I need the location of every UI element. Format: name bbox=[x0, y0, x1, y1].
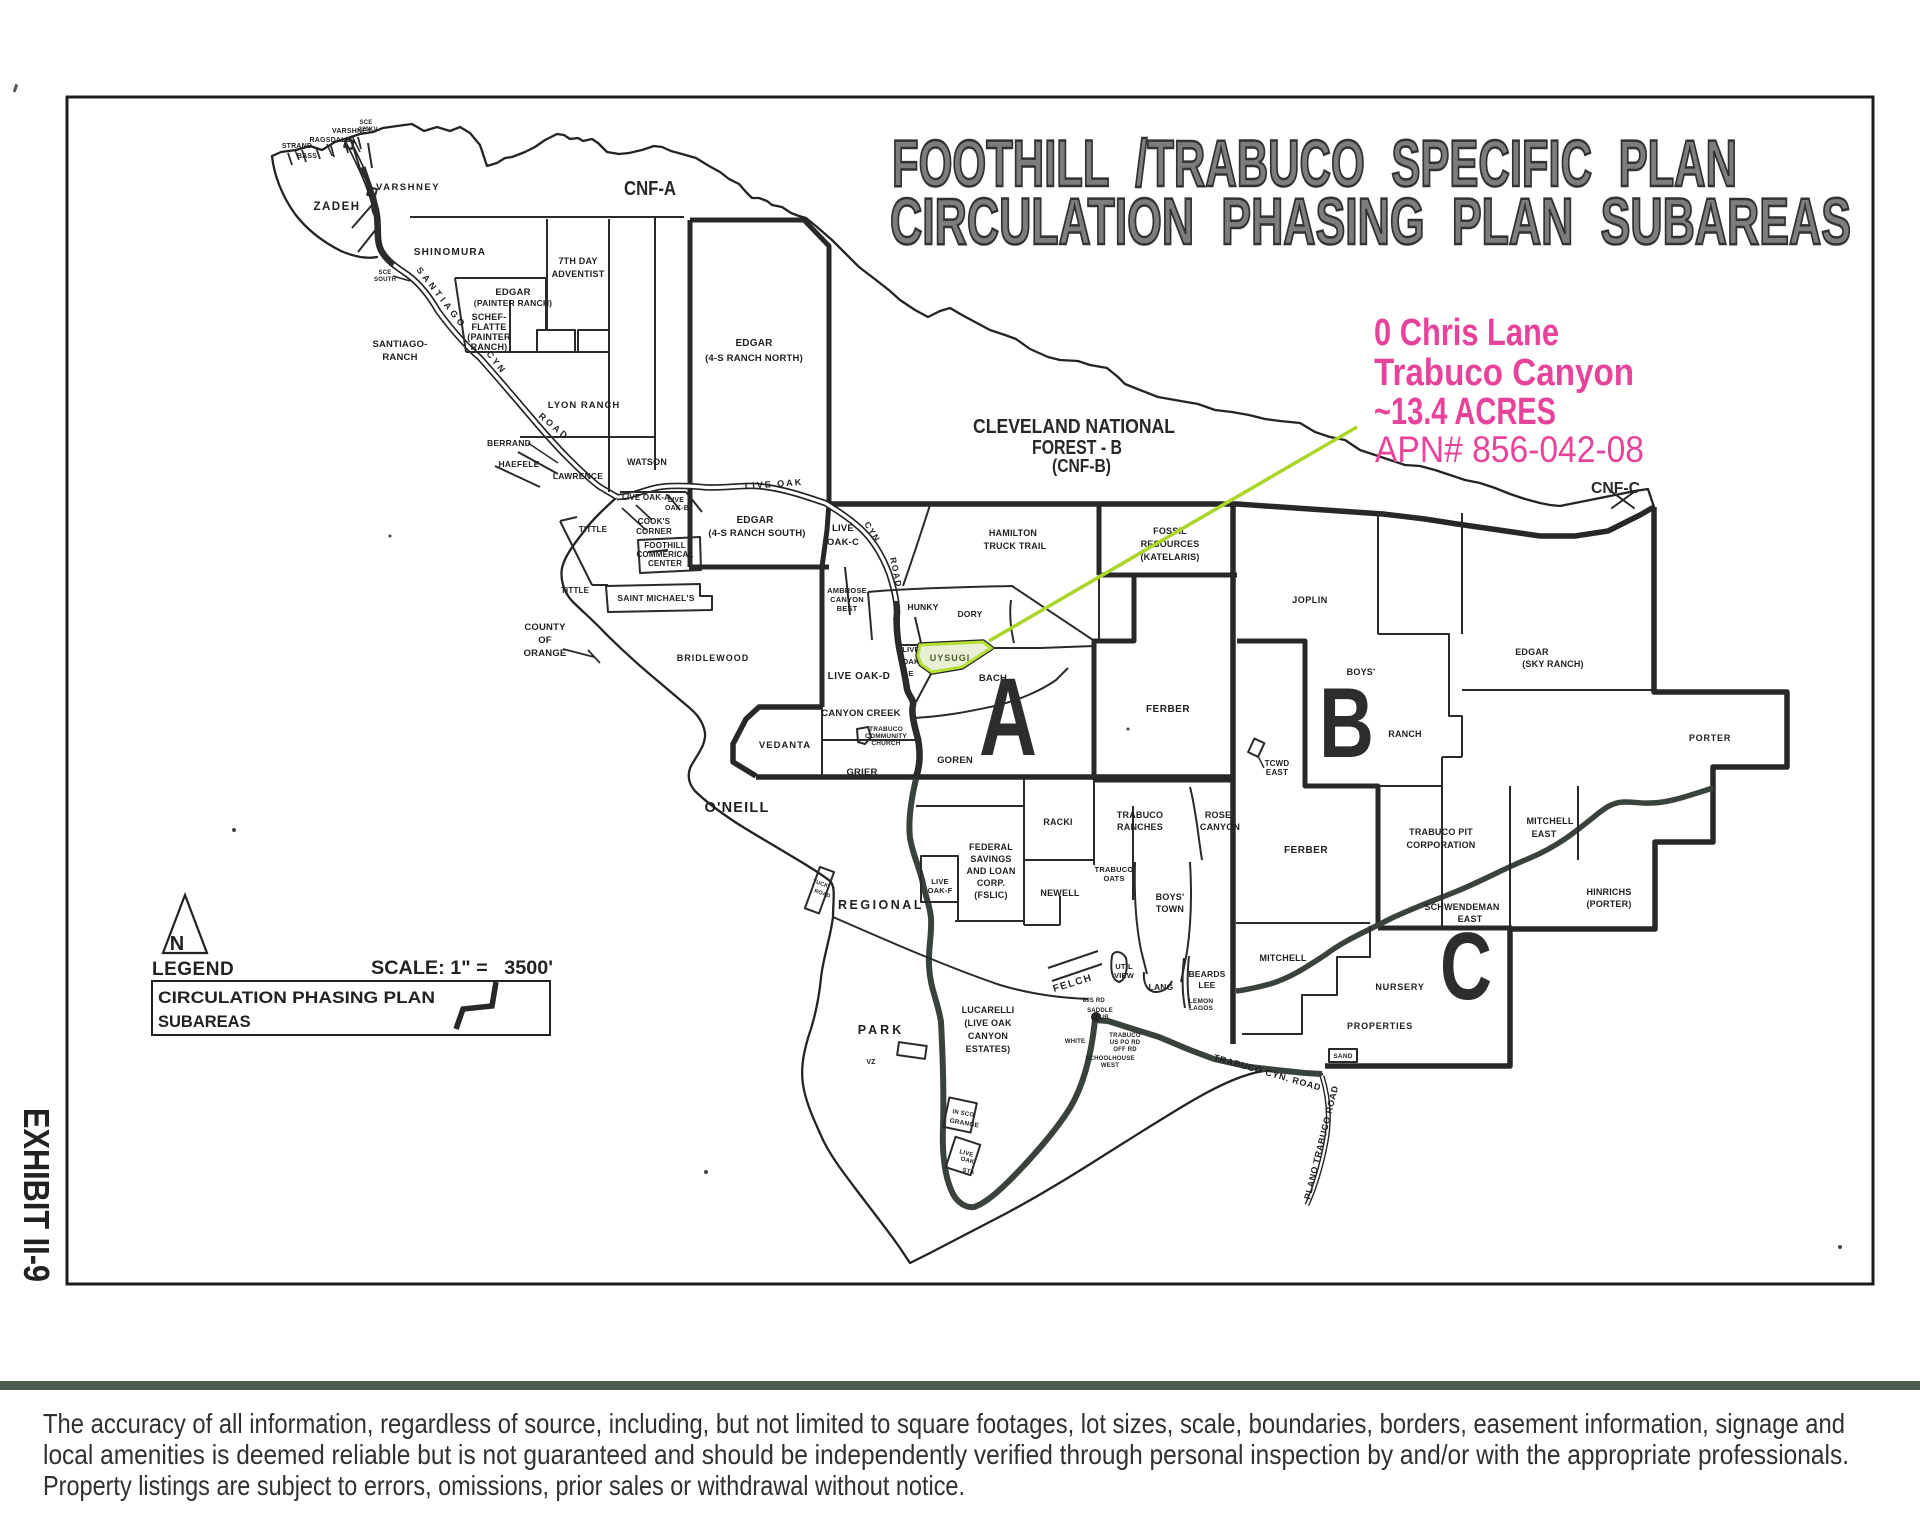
svg-text:~13.4 ACRES: ~13.4 ACRES bbox=[1374, 391, 1556, 433]
svg-text:PARK: PARK bbox=[858, 1023, 905, 1037]
svg-text:VIEW: VIEW bbox=[1114, 971, 1135, 980]
svg-text:CORPORATION: CORPORATION bbox=[1406, 840, 1475, 850]
svg-text:TRABUCO: TRABUCO bbox=[1095, 865, 1134, 874]
svg-text:VARSHNEY: VARSHNEY bbox=[376, 182, 440, 193]
svg-text:RANCH: RANCH bbox=[382, 352, 417, 363]
svg-text:CANYON: CANYON bbox=[830, 595, 864, 604]
svg-text:AND LOAN: AND LOAN bbox=[966, 866, 1015, 876]
svg-text:EDGAR: EDGAR bbox=[1515, 647, 1549, 657]
svg-text:local amenities is deemed reli: local amenities is deemed reliable but i… bbox=[43, 1439, 1849, 1470]
svg-text:SADDLE: SADDLE bbox=[1087, 1008, 1113, 1014]
svg-text:RACKI: RACKI bbox=[1043, 817, 1073, 827]
svg-text:LANG: LANG bbox=[1149, 982, 1174, 992]
svg-text:SAND: SAND bbox=[1333, 1053, 1352, 1060]
svg-text:PORTER: PORTER bbox=[1689, 733, 1731, 743]
svg-text:GRIER: GRIER bbox=[846, 767, 877, 778]
svg-text:EAST: EAST bbox=[1266, 768, 1288, 777]
svg-text:SAINT MICHAEL'S: SAINT MICHAEL'S bbox=[617, 593, 694, 603]
svg-text:PROPERTIES: PROPERTIES bbox=[1347, 1021, 1413, 1031]
svg-text:SAVINGS: SAVINGS bbox=[970, 854, 1011, 864]
svg-text:COUNTY: COUNTY bbox=[524, 622, 566, 633]
svg-text:LIVE: LIVE bbox=[832, 523, 854, 534]
svg-text:FOOTHILL: FOOTHILL bbox=[644, 541, 686, 550]
svg-text:TRABUCO PIT: TRABUCO PIT bbox=[1409, 827, 1473, 837]
svg-text:VZ: VZ bbox=[866, 1059, 876, 1066]
svg-text:COMMUNITY: COMMUNITY bbox=[865, 733, 907, 740]
svg-text:CENTER: CENTER bbox=[648, 559, 682, 568]
svg-text:SUBAREAS: SUBAREAS bbox=[158, 1013, 251, 1031]
svg-text:LAWRENCE: LAWRENCE bbox=[553, 471, 603, 481]
svg-text:EDGAR: EDGAR bbox=[736, 515, 774, 526]
svg-text:EDGAR: EDGAR bbox=[495, 287, 530, 298]
svg-text:SCE: SCE bbox=[379, 270, 392, 276]
svg-text:LIVE OAK-A: LIVE OAK-A bbox=[622, 493, 670, 502]
svg-text:SANTIAGO-: SANTIAGO- bbox=[372, 339, 427, 350]
svg-text:N: N bbox=[170, 933, 184, 955]
svg-text:BRIDLEWOOD: BRIDLEWOOD bbox=[677, 653, 750, 663]
svg-text:REGIONAL: REGIONAL bbox=[838, 898, 924, 912]
svg-text:TITTLE: TITTLE bbox=[561, 586, 590, 595]
svg-text:O'NEILL: O'NEILL bbox=[704, 800, 769, 816]
svg-text:BOYS': BOYS' bbox=[1156, 892, 1185, 902]
svg-text:CLUB: CLUB bbox=[1091, 1015, 1109, 1021]
svg-text:(SKY RANCH): (SKY RANCH) bbox=[1522, 659, 1584, 669]
svg-text:(4-S RANCH SOUTH): (4-S RANCH SOUTH) bbox=[708, 528, 805, 539]
svg-text:LIVE: LIVE bbox=[668, 497, 684, 504]
svg-text:CANYON: CANYON bbox=[1200, 822, 1240, 832]
svg-text:CNF-A: CNF-A bbox=[624, 178, 676, 200]
svg-text:US PO RD: US PO RD bbox=[1110, 1040, 1141, 1046]
svg-text:SCHEF-: SCHEF- bbox=[472, 312, 507, 322]
svg-text:0 Chris Lane: 0 Chris Lane bbox=[1374, 312, 1559, 354]
svg-text:OAK-C: OAK-C bbox=[827, 537, 859, 548]
svg-text:COMMERICAL: COMMERICAL bbox=[636, 550, 693, 559]
svg-text:'80S RD: '80S RD bbox=[1081, 998, 1105, 1004]
svg-text:OAK-F: OAK-F bbox=[928, 886, 953, 895]
svg-text:CNF-C: CNF-C bbox=[1591, 480, 1640, 497]
svg-text:OFF RD: OFF RD bbox=[1113, 1047, 1137, 1053]
svg-text:HUNKY: HUNKY bbox=[907, 602, 938, 612]
svg-text:LEMON: LEMON bbox=[1189, 998, 1214, 1005]
svg-text:B: B bbox=[1319, 667, 1374, 778]
svg-text:UYSUGI: UYSUGI bbox=[930, 653, 971, 663]
svg-text:(FSLIC): (FSLIC) bbox=[974, 890, 1007, 900]
svg-text:BEARDS: BEARDS bbox=[1188, 969, 1225, 979]
svg-text:EXHIBIT II-9: EXHIBIT II-9 bbox=[16, 1108, 57, 1282]
svg-text:(LIVE OAK: (LIVE OAK bbox=[964, 1018, 1012, 1028]
svg-text:SCE: SCE bbox=[360, 120, 373, 126]
svg-text:220KV: 220KV bbox=[358, 127, 377, 133]
svg-text:SOUTH: SOUTH bbox=[374, 277, 396, 283]
svg-text:E: E bbox=[908, 669, 913, 678]
svg-text:STRAND: STRAND bbox=[282, 143, 312, 150]
svg-text:CIRCULATION PHASING PLAN: CIRCULATION PHASING PLAN bbox=[158, 989, 435, 1007]
svg-text:MITCHELL: MITCHELL bbox=[1259, 953, 1306, 963]
svg-text:UTIL: UTIL bbox=[1115, 962, 1133, 971]
svg-text:LAGOS: LAGOS bbox=[1189, 1005, 1214, 1012]
svg-text:GOREN: GOREN bbox=[937, 755, 973, 766]
svg-text:HINRICHS: HINRICHS bbox=[1586, 887, 1631, 897]
svg-text:OATS: OATS bbox=[1103, 874, 1124, 883]
svg-text:A: A bbox=[979, 656, 1037, 779]
svg-text:VEDANTA: VEDANTA bbox=[759, 740, 811, 751]
svg-text:OAK-B: OAK-B bbox=[665, 505, 689, 512]
svg-text:LIVE OAK-D: LIVE OAK-D bbox=[828, 671, 891, 682]
svg-text:(PORTER): (PORTER) bbox=[1586, 899, 1631, 909]
svg-text:LYON RANCH: LYON RANCH bbox=[548, 400, 620, 411]
svg-text:TRABUCO: TRABUCO bbox=[1109, 1033, 1141, 1039]
svg-text:AMBROSE: AMBROSE bbox=[827, 586, 867, 595]
svg-text:RAGSDALE: RAGSDALE bbox=[310, 137, 351, 144]
svg-text:ADVENTIST: ADVENTIST bbox=[552, 269, 605, 279]
svg-text:BERRAND: BERRAND bbox=[487, 438, 531, 448]
svg-text:LUCARELLI: LUCARELLI bbox=[962, 1005, 1015, 1015]
svg-text:C: C bbox=[1440, 913, 1492, 1020]
svg-text:EAST: EAST bbox=[1532, 829, 1557, 839]
svg-text:SHINOMURA: SHINOMURA bbox=[414, 247, 486, 258]
svg-text:MITCHELL: MITCHELL bbox=[1526, 816, 1573, 826]
svg-text:RANCHES: RANCHES bbox=[1117, 822, 1163, 832]
svg-text:ESTATES): ESTATES) bbox=[966, 1044, 1011, 1054]
svg-text:NEWELL: NEWELL bbox=[1040, 888, 1079, 898]
svg-text:(KATELARIS): (KATELARIS) bbox=[1140, 552, 1199, 562]
svg-text:COOK'S: COOK'S bbox=[638, 517, 671, 526]
svg-text:CLEVELAND NATIONAL: CLEVELAND NATIONAL bbox=[973, 416, 1175, 438]
svg-text:(CNF-B): (CNF-B) bbox=[1052, 456, 1111, 476]
svg-text:TRABUCO: TRABUCO bbox=[869, 726, 903, 733]
svg-text:Property listings are subject: Property listings are subject to errors,… bbox=[43, 1470, 965, 1501]
svg-text:LEGEND: LEGEND bbox=[152, 959, 234, 980]
svg-text:TOWN: TOWN bbox=[1156, 904, 1184, 914]
svg-text:RANCH: RANCH bbox=[1388, 729, 1422, 739]
svg-text:DORY: DORY bbox=[957, 609, 982, 619]
svg-text:WATSON: WATSON bbox=[627, 457, 667, 467]
svg-text:LIVE: LIVE bbox=[931, 877, 948, 886]
svg-text:HAEFELE: HAEFELE bbox=[498, 459, 539, 469]
svg-text:LEE: LEE bbox=[1198, 980, 1215, 990]
svg-text:7TH DAY: 7TH DAY bbox=[558, 256, 597, 266]
svg-text:(PAINTER: (PAINTER bbox=[467, 332, 511, 342]
svg-text:CORP.: CORP. bbox=[977, 878, 1005, 888]
svg-text:OF: OF bbox=[538, 635, 552, 646]
svg-text:TRUCK TRAIL: TRUCK TRAIL bbox=[984, 541, 1047, 551]
svg-text:ZADEH: ZADEH bbox=[313, 201, 360, 213]
svg-text:TCWD: TCWD bbox=[1265, 759, 1290, 768]
svg-text:TITTLE: TITTLE bbox=[579, 525, 608, 534]
svg-text:CHURCH: CHURCH bbox=[871, 740, 900, 747]
svg-text:BEST: BEST bbox=[837, 604, 858, 613]
svg-text:CANYON CREEK: CANYON CREEK bbox=[821, 708, 900, 719]
svg-text:BASS: BASS bbox=[297, 153, 317, 160]
svg-text:SCHWENDEMAN: SCHWENDEMAN bbox=[1424, 902, 1499, 912]
svg-text:WEST: WEST bbox=[1101, 1063, 1119, 1069]
svg-text:TRABUCO: TRABUCO bbox=[1117, 810, 1163, 820]
svg-text:FERBER: FERBER bbox=[1146, 704, 1190, 715]
svg-text:APN# 856-042-08: APN# 856-042-08 bbox=[1375, 429, 1644, 470]
svg-text:The accuracy of all informatio: The accuracy of all information, regardl… bbox=[43, 1408, 1845, 1439]
svg-text:CORNER: CORNER bbox=[636, 527, 672, 536]
svg-text:FLATTE: FLATTE bbox=[471, 322, 506, 332]
svg-text:ORANGE: ORANGE bbox=[524, 648, 567, 659]
svg-text:HAMILTON: HAMILTON bbox=[989, 528, 1037, 538]
svg-text:FERBER: FERBER bbox=[1284, 845, 1328, 856]
svg-text:Trabuco Canyon: Trabuco Canyon bbox=[1374, 352, 1634, 394]
svg-text:FEDERAL: FEDERAL bbox=[969, 842, 1013, 852]
svg-text:CIRCULATION PHASING PLAN SUBAR: CIRCULATION PHASING PLAN SUBAREAS bbox=[890, 184, 1851, 258]
svg-text:SCALE: 1" = 3500': SCALE: 1" = 3500' bbox=[371, 958, 553, 979]
svg-text:(PAINTER RANCH): (PAINTER RANCH) bbox=[474, 298, 552, 308]
svg-text:(4-S RANCH NORTH): (4-S RANCH NORTH) bbox=[705, 353, 803, 364]
svg-text:CANYON: CANYON bbox=[968, 1031, 1008, 1041]
svg-text:NURSERY: NURSERY bbox=[1375, 982, 1424, 992]
svg-text:WHITE: WHITE bbox=[1065, 1039, 1085, 1045]
svg-text:SCHOOLHOUSE: SCHOOLHOUSE bbox=[1085, 1056, 1134, 1062]
svg-text:EDGAR: EDGAR bbox=[735, 338, 773, 349]
svg-text:ROSE: ROSE bbox=[1205, 810, 1231, 820]
svg-text:JOPLIN: JOPLIN bbox=[1292, 595, 1328, 605]
